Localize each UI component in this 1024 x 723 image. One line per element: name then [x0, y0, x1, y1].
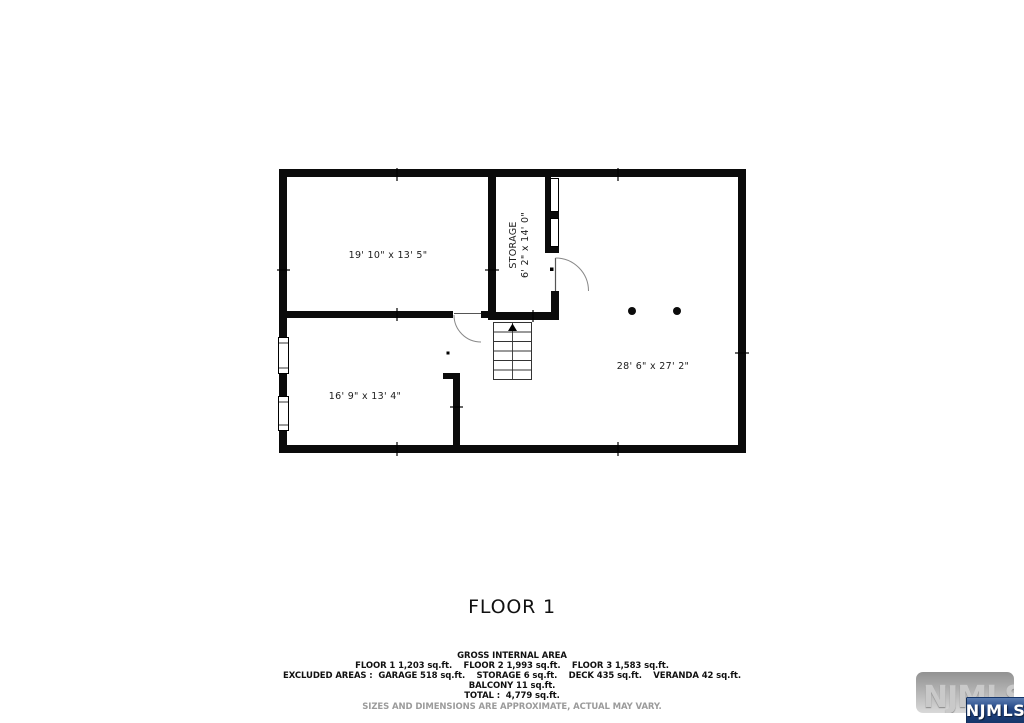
summary-total: TOTAL : 4,779 sq.ft. [0, 691, 1024, 701]
chase-box [551, 219, 559, 247]
wall-right [738, 169, 746, 453]
wall-mid-horizontal [287, 311, 453, 318]
door-arc-icon [453, 311, 481, 342]
stairs-icon [494, 323, 532, 380]
chase-box [551, 179, 559, 212]
column-dot-icon [628, 307, 636, 315]
floorplan-page: 19' 10" x 13' 5" 16' 9" x 13' 4" 28' 6" … [0, 0, 1024, 723]
summary-floors: FLOOR 1 1,203 sq.ft. FLOOR 2 1,993 sq.ft… [0, 661, 1024, 671]
summary-heading: GROSS INTERNAL AREA [0, 651, 1024, 661]
window-icon [279, 397, 289, 431]
room-label-bottom-left: 16' 9" x 13' 4" [329, 391, 401, 402]
room-label-storage-dimensions: 6' 2" x 14' 0" [520, 212, 531, 278]
door-arc-icon [556, 258, 589, 291]
column-dots [628, 307, 681, 315]
summary-excluded: EXCLUDED AREAS : GARAGE 518 sq.ft. STORA… [0, 671, 1024, 681]
window-icon [279, 338, 289, 374]
floor-title: FLOOR 1 [0, 596, 1024, 618]
wall-chase-divider [545, 212, 559, 218]
area-summary: GROSS INTERNAL AREA FLOOR 1 1,203 sq.ft.… [0, 651, 1024, 712]
wall-chase-cap [545, 247, 559, 253]
interior-walls [287, 177, 559, 446]
room-label-storage-name: STORAGE [508, 221, 519, 268]
wall-l-vertical [453, 373, 460, 446]
njmls-badge: NJMLS [966, 697, 1024, 723]
njmls-badge-text: NJMLS [966, 701, 1024, 720]
wall-storage-left [488, 177, 496, 319]
room-label-right: 28' 6" x 27' 2" [617, 361, 689, 372]
wall-below-storage-door [551, 291, 559, 320]
column-dot-icon [673, 307, 681, 315]
summary-disclaimer: SIZES AND DIMENSIONS ARE APPROXIMATE, AC… [0, 702, 1024, 712]
wall-storage-bottom [488, 312, 559, 320]
wall-top [279, 169, 746, 177]
summary-balcony: BALCONY 11 sq.ft. [0, 681, 1024, 691]
room-label-top-left: 19' 10" x 13' 5" [349, 250, 428, 261]
wall-bottom [279, 445, 746, 453]
